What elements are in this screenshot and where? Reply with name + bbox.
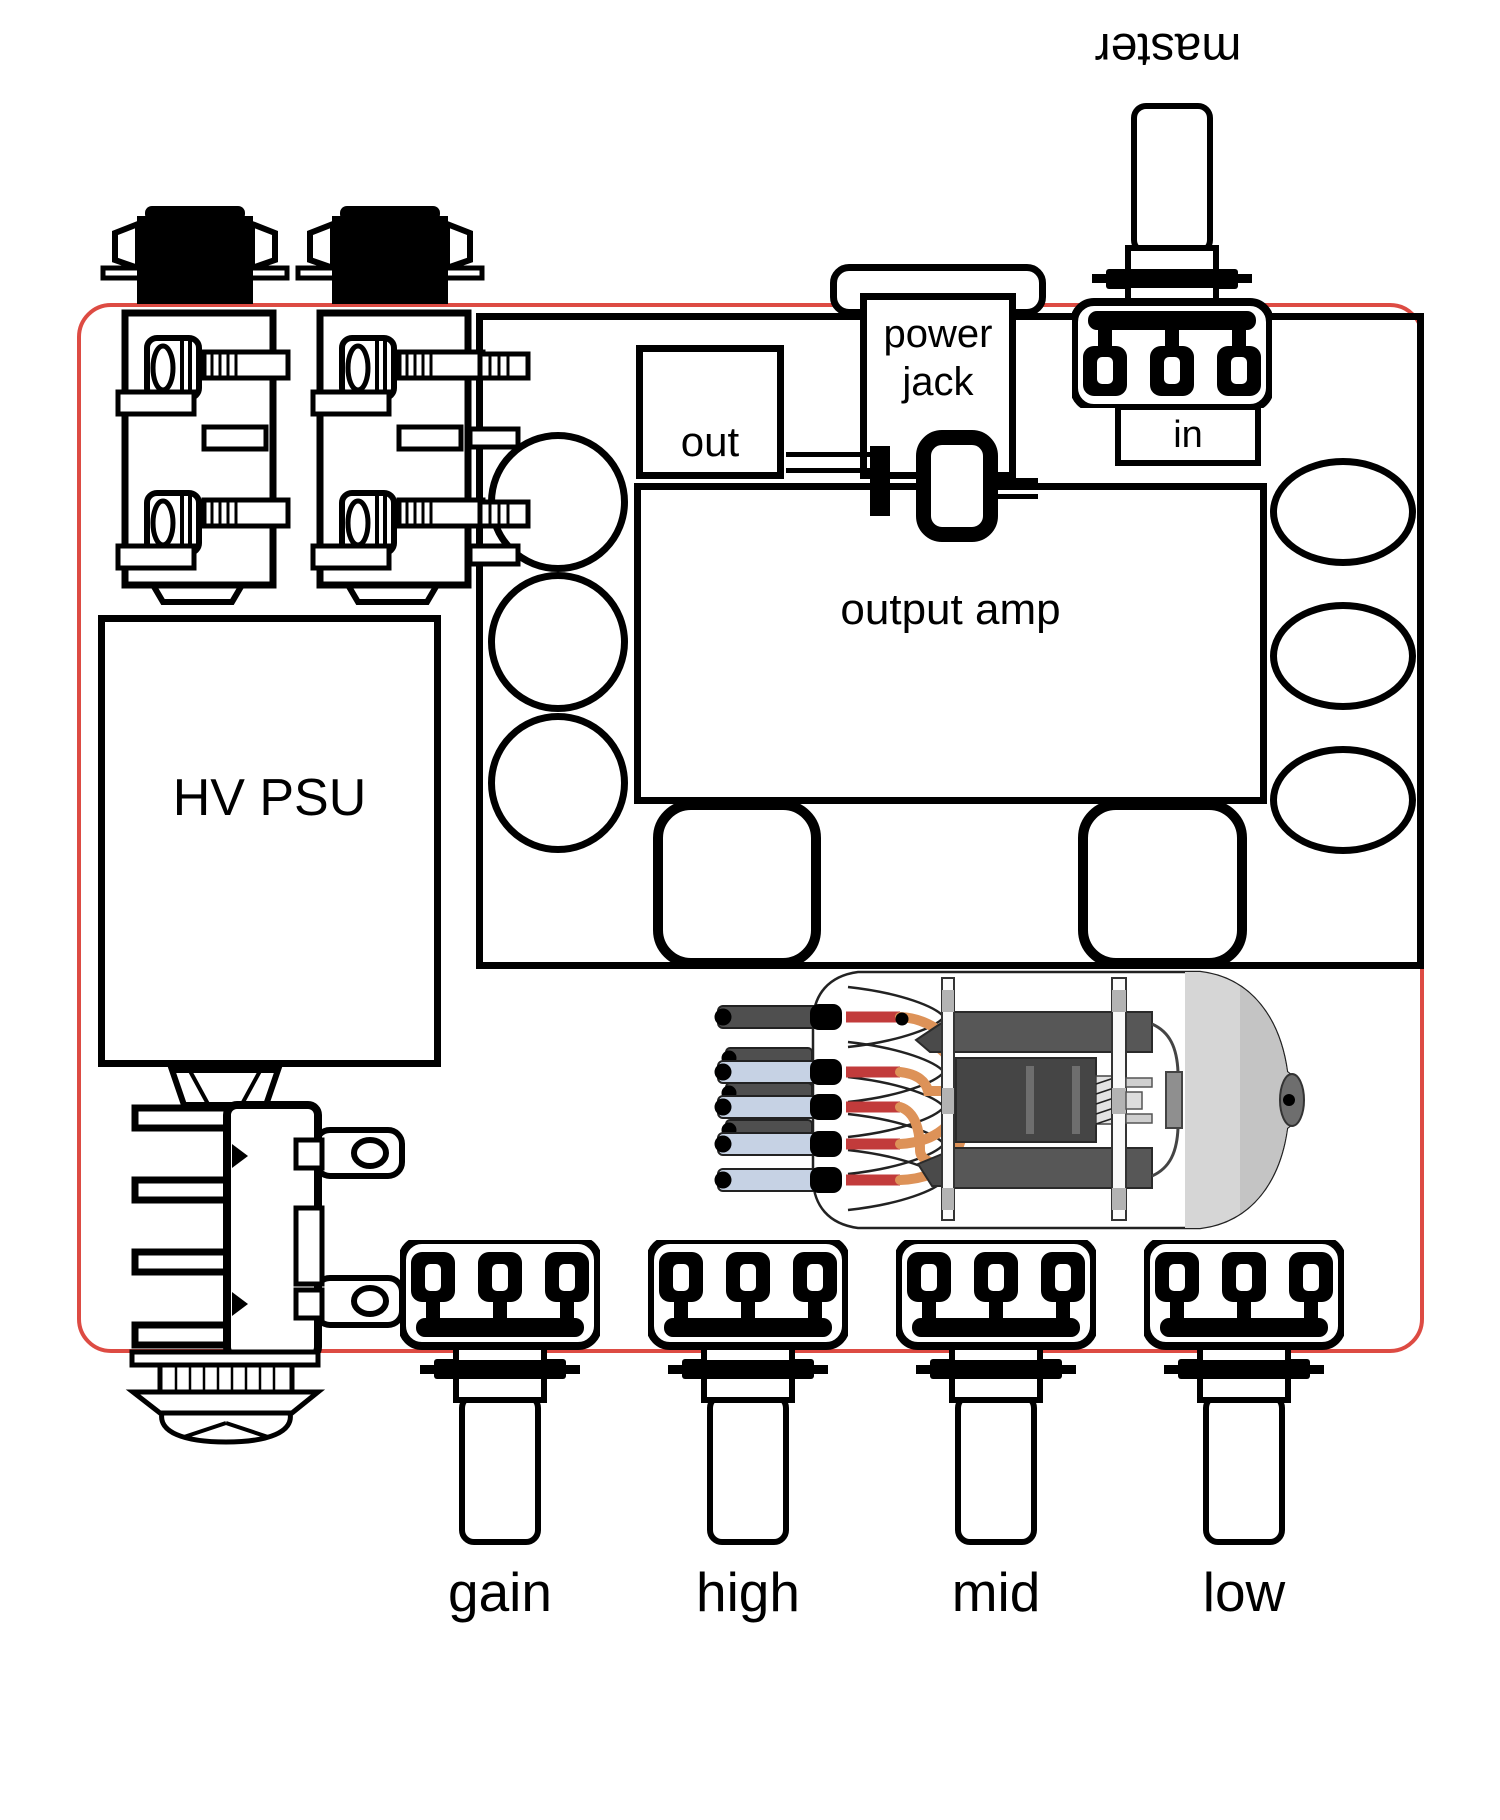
mount-hole [1270, 458, 1416, 566]
power-pin-line [786, 468, 874, 473]
out-box: out [636, 345, 784, 479]
power-plug-ring [916, 430, 998, 542]
master-label: master [1040, 20, 1296, 80]
hv-psu-box: HV PSU [98, 615, 441, 1067]
power-pin-line [786, 452, 874, 457]
pad [1078, 800, 1247, 968]
knob-mid [896, 1240, 1096, 1550]
knob-gain [400, 1240, 600, 1550]
knob-label-high: high [648, 1558, 848, 1626]
mount-hole [1270, 746, 1416, 854]
knob-low [1144, 1240, 1344, 1550]
output-amp-label: output amp [641, 585, 1260, 635]
power-pin-bar [870, 446, 890, 516]
power-jack-label-2: jack [902, 358, 973, 406]
pad [653, 800, 821, 968]
tube-graphic [640, 950, 1320, 1250]
mount-hole [1270, 602, 1416, 710]
knob-label-gain: gain [400, 1558, 600, 1626]
in-label: in [1173, 414, 1203, 457]
knob-high [648, 1240, 848, 1550]
master-pot [1072, 98, 1272, 408]
power-jack-label-1: power [884, 310, 993, 358]
input-jack-b [285, 150, 495, 610]
knob-label-low: low [1144, 1558, 1344, 1626]
input-jack-a [90, 150, 300, 610]
in-box: in [1115, 404, 1261, 466]
input-jack-b-pins [470, 340, 540, 575]
hv-psu-label: HV PSU [105, 768, 434, 828]
pcb-layout-diagram: output amp out power jack in master [0, 0, 1500, 1820]
output-jack [120, 1040, 420, 1450]
knob-label-mid: mid [896, 1558, 1096, 1626]
mount-hole [488, 572, 628, 712]
mount-hole [488, 713, 628, 853]
out-label: out [681, 418, 739, 472]
